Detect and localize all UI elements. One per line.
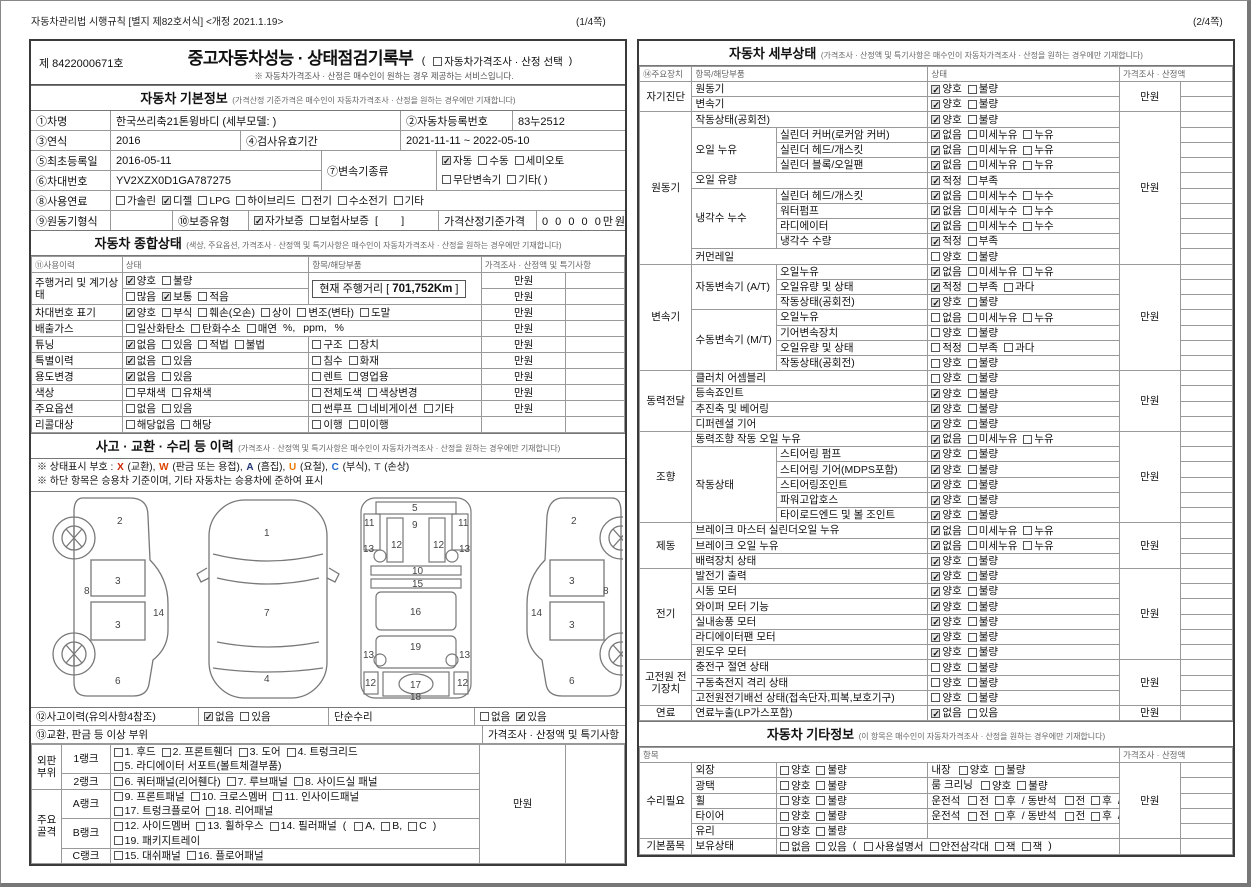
checkbox-option[interactable]: ✓양호 <box>931 508 961 522</box>
unchecked-checkbox[interactable] <box>968 146 977 155</box>
unchecked-checkbox[interactable] <box>931 328 940 337</box>
checkbox-option[interactable]: 양호 <box>931 250 961 264</box>
checkbox-option[interactable]: ✓양호 <box>931 387 961 401</box>
checked-checkbox[interactable]: ✓ <box>931 100 940 109</box>
checkbox-option[interactable]: 화재 <box>349 354 379 368</box>
checkbox-option[interactable]: 변조(변타) <box>297 306 354 320</box>
unchecked-checkbox[interactable] <box>114 836 123 845</box>
unchecked-checkbox[interactable] <box>114 792 123 801</box>
checkbox-option[interactable]: 있음 <box>240 709 270 724</box>
unchecked-checkbox[interactable] <box>381 822 390 831</box>
unchecked-checkbox[interactable] <box>312 388 321 397</box>
unchecked-checkbox[interactable] <box>995 842 1004 851</box>
checkbox-option[interactable]: 수소전기 <box>338 193 388 208</box>
checkbox-option[interactable]: 과다 <box>1004 280 1034 294</box>
checkbox-option[interactable]: ✓보통 <box>162 290 192 304</box>
unchecked-checkbox[interactable] <box>187 851 196 860</box>
checkbox-option[interactable]: ✓자가보증 <box>254 213 304 228</box>
unchecked-checkbox[interactable] <box>968 572 977 581</box>
unchecked-checkbox[interactable] <box>191 792 200 801</box>
unchecked-checkbox[interactable] <box>931 374 940 383</box>
checkbox-option[interactable]: ✓적정 <box>931 234 961 248</box>
unchecked-checkbox[interactable] <box>507 175 516 184</box>
checked-checkbox[interactable]: ✓ <box>931 709 940 718</box>
checked-checkbox[interactable]: ✓ <box>931 480 940 489</box>
checkbox-option[interactable]: ✓양호 <box>931 493 961 507</box>
checkbox-option[interactable]: 불량 <box>968 326 998 340</box>
unchecked-checkbox[interactable] <box>1023 146 1032 155</box>
unchecked-checkbox[interactable] <box>1023 191 1032 200</box>
unchecked-checkbox[interactable] <box>114 822 123 831</box>
checkbox-option[interactable]: 적법 <box>198 338 228 352</box>
unchecked-checkbox[interactable] <box>294 777 303 786</box>
unchecked-checkbox[interactable] <box>349 340 358 349</box>
unchecked-checkbox[interactable] <box>114 851 123 860</box>
checkbox-option[interactable]: ✓없음 <box>931 158 961 172</box>
checked-checkbox[interactable]: ✓ <box>931 435 940 444</box>
checkbox-option[interactable]: 19. 패키지트레이 <box>114 834 200 848</box>
checked-checkbox[interactable]: ✓ <box>931 633 940 642</box>
unchecked-checkbox[interactable] <box>312 404 321 413</box>
checked-checkbox[interactable]: ✓ <box>931 85 940 94</box>
checkbox-option[interactable]: 매연 <box>247 322 277 336</box>
unchecked-checkbox[interactable] <box>349 372 358 381</box>
unchecked-checkbox[interactable] <box>968 85 977 94</box>
unchecked-checkbox[interactable] <box>1023 222 1032 231</box>
checkbox-option[interactable]: ✓양호 <box>931 447 961 461</box>
unchecked-checkbox[interactable] <box>358 404 367 413</box>
checkbox-option[interactable]: 부족 <box>968 341 998 355</box>
checkbox-option[interactable]: 장치 <box>349 338 379 352</box>
checkbox-option[interactable]: 무채색 <box>126 386 166 400</box>
unchecked-checkbox[interactable] <box>968 191 977 200</box>
checkbox-option[interactable]: ✓없음 <box>931 128 961 142</box>
checkbox-option[interactable]: 있음 <box>162 370 192 384</box>
checkbox-option[interactable]: 양호 <box>931 371 961 385</box>
unchecked-checkbox[interactable] <box>478 156 487 165</box>
checkbox-option[interactable]: ✓없음 <box>126 370 156 384</box>
checkbox-option[interactable]: 불량 <box>968 676 998 690</box>
unchecked-checkbox[interactable] <box>968 541 977 550</box>
unchecked-checkbox[interactable] <box>480 712 489 721</box>
unchecked-checkbox[interactable] <box>968 389 977 398</box>
checkbox-option[interactable]: 없음 <box>780 840 810 854</box>
checked-checkbox[interactable]: ✓ <box>931 648 940 657</box>
checkbox-option[interactable]: 양호 <box>931 661 961 675</box>
checkbox-option[interactable]: 불량 <box>968 402 998 416</box>
unchecked-checkbox[interactable] <box>968 511 977 520</box>
checkbox-option[interactable]: 불량 <box>968 295 998 309</box>
checked-checkbox[interactable]: ✓ <box>931 161 940 170</box>
unchecked-checkbox[interactable] <box>239 748 248 757</box>
checkbox-option[interactable]: ✓양호 <box>931 615 961 629</box>
checkbox-option[interactable]: 13. 휠하우스 <box>196 819 263 833</box>
checkbox-option[interactable]: 15. 대쉬패널 <box>114 849 181 863</box>
checkbox-option[interactable]: 하이브리드 <box>236 193 295 208</box>
unchecked-checkbox[interactable] <box>968 633 977 642</box>
checkbox-option[interactable]: 미세누유 <box>968 143 1018 157</box>
checked-checkbox[interactable]: ✓ <box>931 130 940 139</box>
unchecked-checkbox[interactable] <box>408 822 417 831</box>
unchecked-checkbox[interactable] <box>968 267 977 276</box>
checked-checkbox[interactable]: ✓ <box>931 146 940 155</box>
checkbox-option[interactable]: 잭 <box>1022 840 1043 854</box>
checkbox-option[interactable]: 있음 <box>162 338 192 352</box>
unchecked-checkbox[interactable] <box>780 766 789 775</box>
checkbox-option[interactable]: 썬루프 <box>312 402 352 416</box>
checkbox-option[interactable]: LPG <box>198 195 230 207</box>
checkbox-option[interactable]: 세미오토 <box>515 153 565 168</box>
unchecked-checkbox[interactable] <box>1004 343 1013 352</box>
unchecked-checkbox[interactable] <box>310 216 319 225</box>
checkbox-option[interactable]: 미세누수 <box>968 189 1018 203</box>
checked-checkbox[interactable]: ✓ <box>931 237 940 246</box>
unchecked-checkbox[interactable] <box>968 693 977 702</box>
unchecked-checkbox[interactable] <box>198 196 207 205</box>
checkbox-option[interactable]: 구조 <box>312 338 342 352</box>
checkbox-option[interactable]: 누수 <box>1023 189 1053 203</box>
checkbox-option[interactable]: 불량 <box>968 113 998 127</box>
unchecked-checkbox[interactable] <box>349 420 358 429</box>
checkbox-option[interactable]: 있음 <box>162 402 192 416</box>
checkbox-option[interactable]: 전 <box>1065 794 1086 808</box>
checkbox-option[interactable]: 양호 <box>780 763 810 777</box>
unchecked-checkbox[interactable] <box>338 196 347 205</box>
checkbox-option[interactable]: 자동차가격조사 · 산정 선택 <box>433 54 563 69</box>
unchecked-checkbox[interactable] <box>780 796 789 805</box>
checkbox-option[interactable]: 수동 <box>478 153 508 168</box>
unchecked-checkbox[interactable] <box>162 340 171 349</box>
checked-checkbox[interactable]: ✓ <box>931 602 940 611</box>
checkbox-option[interactable]: 부족 <box>968 174 998 188</box>
unchecked-checkbox[interactable] <box>780 827 789 836</box>
checkbox-option[interactable]: 불량 <box>968 97 998 111</box>
unchecked-checkbox[interactable] <box>368 388 377 397</box>
unchecked-checkbox[interactable] <box>126 404 135 413</box>
unchecked-checkbox[interactable] <box>181 420 190 429</box>
checkbox-option[interactable]: 10. 크로스멤버 <box>191 790 268 804</box>
unchecked-checkbox[interactable] <box>930 842 939 851</box>
checkbox-option[interactable]: 5. 라디에이터 서포트(볼트체결부품) <box>114 759 282 773</box>
unchecked-checkbox[interactable] <box>968 557 977 566</box>
unchecked-checkbox[interactable] <box>442 175 451 184</box>
checkbox-option[interactable]: 후 <box>995 794 1016 808</box>
checkbox-option[interactable]: 미세누유 <box>968 539 1018 553</box>
unchecked-checkbox[interactable] <box>433 57 442 66</box>
checkbox-option[interactable]: 훼손(오손) <box>198 306 255 320</box>
unchecked-checkbox[interactable] <box>312 356 321 365</box>
checkbox-option[interactable]: 미세누유 <box>968 265 1018 279</box>
checked-checkbox[interactable]: ✓ <box>254 216 263 225</box>
checkbox-option[interactable]: 기타 <box>394 193 424 208</box>
checkbox-option[interactable]: 누유 <box>1023 158 1053 172</box>
unchecked-checkbox[interactable] <box>162 748 171 757</box>
checked-checkbox[interactable]: ✓ <box>126 276 135 285</box>
checkbox-option[interactable]: ✓없음 <box>204 709 234 724</box>
checkbox-option[interactable]: 렌트 <box>312 370 342 384</box>
checkbox-option[interactable]: 미세누유 <box>968 432 1018 446</box>
checked-checkbox[interactable]: ✓ <box>931 541 940 550</box>
checkbox-option[interactable]: 없음 <box>480 709 510 724</box>
checkbox-option[interactable]: B, <box>381 819 402 833</box>
unchecked-checkbox[interactable] <box>968 709 977 718</box>
checked-checkbox[interactable]: ✓ <box>931 267 940 276</box>
unchecked-checkbox[interactable] <box>191 324 200 333</box>
unchecked-checkbox[interactable] <box>931 343 940 352</box>
unchecked-checkbox[interactable] <box>1023 526 1032 535</box>
unchecked-checkbox[interactable] <box>114 777 123 786</box>
checkbox-option[interactable]: ✓없음 <box>126 338 156 352</box>
checked-checkbox[interactable]: ✓ <box>442 156 451 165</box>
checkbox-option[interactable]: 불량 <box>968 600 998 614</box>
checkbox-option[interactable]: ✓양호 <box>931 569 961 583</box>
checkbox-option[interactable]: 양호 <box>959 763 989 777</box>
unchecked-checkbox[interactable] <box>302 196 311 205</box>
unchecked-checkbox[interactable] <box>198 340 207 349</box>
unchecked-checkbox[interactable] <box>114 807 123 816</box>
checked-checkbox[interactable]: ✓ <box>931 526 940 535</box>
checkbox-option[interactable]: 양호 <box>780 794 810 808</box>
unchecked-checkbox[interactable] <box>931 313 940 322</box>
checkbox-option[interactable]: ✓양호 <box>931 630 961 644</box>
unchecked-checkbox[interactable] <box>1065 796 1074 805</box>
checked-checkbox[interactable]: ✓ <box>162 292 171 301</box>
checkbox-option[interactable]: ✓자동 <box>442 153 472 168</box>
checkbox-option[interactable]: 영업용 <box>349 370 389 384</box>
unchecked-checkbox[interactable] <box>816 766 825 775</box>
checkbox-option[interactable]: 누유 <box>1023 539 1053 553</box>
checked-checkbox[interactable]: ✓ <box>931 389 940 398</box>
unchecked-checkbox[interactable] <box>816 781 825 790</box>
unchecked-checkbox[interactable] <box>968 812 977 821</box>
checkbox-option[interactable]: ✓양호 <box>931 97 961 111</box>
unchecked-checkbox[interactable] <box>1023 161 1032 170</box>
checkbox-option[interactable]: 해당없음 <box>126 418 176 432</box>
unchecked-checkbox[interactable] <box>968 252 977 261</box>
checked-checkbox[interactable]: ✓ <box>931 222 940 231</box>
checkbox-option[interactable]: 미세누유 <box>968 128 1018 142</box>
checkbox-option[interactable]: 7. 루브패널 <box>227 775 288 789</box>
checkbox-option[interactable]: ✓없음 <box>931 204 961 218</box>
checkbox-option[interactable]: 불량 <box>968 82 998 96</box>
checkbox-option[interactable]: ✓양호 <box>126 306 156 320</box>
unchecked-checkbox[interactable] <box>162 372 171 381</box>
unchecked-checkbox[interactable] <box>816 827 825 836</box>
checkbox-option[interactable]: 미세누유 <box>968 311 1018 325</box>
unchecked-checkbox[interactable] <box>126 388 135 397</box>
unchecked-checkbox[interactable] <box>1023 541 1032 550</box>
unchecked-checkbox[interactable] <box>968 130 977 139</box>
checkbox-option[interactable]: 부족 <box>968 280 998 294</box>
unchecked-checkbox[interactable] <box>931 359 940 368</box>
unchecked-checkbox[interactable] <box>931 693 940 702</box>
checkbox-option[interactable]: 양호 <box>931 326 961 340</box>
unchecked-checkbox[interactable] <box>196 822 205 831</box>
unchecked-checkbox[interactable] <box>968 313 977 322</box>
checkbox-option[interactable]: ✓디젤 <box>162 193 192 208</box>
checkbox-option[interactable]: ✓양호 <box>931 645 961 659</box>
unchecked-checkbox[interactable] <box>931 678 940 687</box>
checked-checkbox[interactable]: ✓ <box>126 308 135 317</box>
checkbox-option[interactable]: 불량 <box>816 763 846 777</box>
unchecked-checkbox[interactable] <box>235 340 244 349</box>
checkbox-option[interactable]: 누유 <box>1023 311 1053 325</box>
checkbox-option[interactable]: 불량 <box>816 809 846 823</box>
checkbox-option[interactable]: ✓양호 <box>931 402 961 416</box>
unchecked-checkbox[interactable] <box>270 822 279 831</box>
checkbox-option[interactable]: ✓없음 <box>931 219 961 233</box>
checked-checkbox[interactable]: ✓ <box>931 617 940 626</box>
checkbox-option[interactable]: 불량 <box>968 661 998 675</box>
checkbox-option[interactable]: 양호 <box>780 809 810 823</box>
checkbox-option[interactable]: 부족 <box>968 234 998 248</box>
checked-checkbox[interactable]: ✓ <box>931 176 940 185</box>
unchecked-checkbox[interactable] <box>780 812 789 821</box>
unchecked-checkbox[interactable] <box>354 822 363 831</box>
checked-checkbox[interactable]: ✓ <box>931 298 940 307</box>
checkbox-option[interactable]: 17. 트렁크플로어 <box>114 804 200 818</box>
checkbox-option[interactable]: 상이 <box>261 306 291 320</box>
checked-checkbox[interactable]: ✓ <box>126 340 135 349</box>
checkbox-option[interactable]: 전기 <box>302 193 332 208</box>
unchecked-checkbox[interactable] <box>968 465 977 474</box>
checkbox-option[interactable]: 누유 <box>1023 265 1053 279</box>
checkbox-option[interactable]: 6. 쿼터패널(리어휀다) <box>114 775 221 789</box>
checkbox-option[interactable]: 양호 <box>931 676 961 690</box>
checkbox-option[interactable]: ✓적정 <box>931 174 961 188</box>
unchecked-checkbox[interactable] <box>968 298 977 307</box>
unchecked-checkbox[interactable] <box>126 420 135 429</box>
checked-checkbox[interactable]: ✓ <box>126 372 135 381</box>
unchecked-checkbox[interactable] <box>968 222 977 231</box>
checked-checkbox[interactable]: ✓ <box>931 191 940 200</box>
unchecked-checkbox[interactable] <box>968 796 977 805</box>
unchecked-checkbox[interactable] <box>968 115 977 124</box>
unchecked-checkbox[interactable] <box>816 796 825 805</box>
checkbox-option[interactable]: 이행 <box>312 418 342 432</box>
checkbox-option[interactable]: 안전삼각대 <box>930 840 989 854</box>
unchecked-checkbox[interactable] <box>968 617 977 626</box>
checkbox-option[interactable]: 불량 <box>968 478 998 492</box>
checkbox-option[interactable]: 누수 <box>1023 219 1053 233</box>
checkbox-option[interactable]: 양호 <box>780 779 810 793</box>
checkbox-option[interactable]: 불법 <box>235 338 265 352</box>
unchecked-checkbox[interactable] <box>162 308 171 317</box>
checked-checkbox[interactable]: ✓ <box>931 496 940 505</box>
unchecked-checkbox[interactable] <box>968 663 977 672</box>
checkbox-option[interactable]: 양호 <box>981 779 1011 793</box>
checkbox-option[interactable]: 적음 <box>198 290 228 304</box>
checkbox-option[interactable]: ✓있음 <box>516 709 546 724</box>
unchecked-checkbox[interactable] <box>162 356 171 365</box>
checkbox-option[interactable]: ✓양호 <box>931 417 961 431</box>
checkbox-option[interactable]: ✓없음 <box>126 354 156 368</box>
unchecked-checkbox[interactable] <box>236 196 245 205</box>
checkbox-option[interactable]: 미세누수 <box>968 219 1018 233</box>
unchecked-checkbox[interactable] <box>968 496 977 505</box>
checkbox-option[interactable]: 양호 <box>931 356 961 370</box>
checkbox-option[interactable]: ✓없음 <box>931 706 961 720</box>
unchecked-checkbox[interactable] <box>126 292 135 301</box>
checkbox-option[interactable]: 가솔린 <box>116 193 156 208</box>
checkbox-option[interactable]: 탄화수소 <box>191 322 241 336</box>
unchecked-checkbox[interactable] <box>1091 796 1100 805</box>
unchecked-checkbox[interactable] <box>240 712 249 721</box>
checkbox-option[interactable]: 16. 플로어패널 <box>187 849 264 863</box>
unchecked-checkbox[interactable] <box>312 420 321 429</box>
unchecked-checkbox[interactable] <box>227 777 236 786</box>
checkbox-option[interactable]: 불량 <box>968 645 998 659</box>
unchecked-checkbox[interactable] <box>162 276 171 285</box>
unchecked-checkbox[interactable] <box>968 343 977 352</box>
unchecked-checkbox[interactable] <box>968 587 977 596</box>
checkbox-option[interactable]: 미이행 <box>349 418 389 432</box>
checkbox-option[interactable]: 일산화탄소 <box>126 322 185 336</box>
unchecked-checkbox[interactable] <box>1023 130 1032 139</box>
checked-checkbox[interactable]: ✓ <box>931 115 940 124</box>
checkbox-option[interactable]: 3. 도어 <box>239 745 281 759</box>
checkbox-option[interactable]: 누수 <box>1023 204 1053 218</box>
unchecked-checkbox[interactable] <box>1022 842 1031 851</box>
checkbox-option[interactable]: ✓양호 <box>931 295 961 309</box>
unchecked-checkbox[interactable] <box>1023 313 1032 322</box>
checkbox-option[interactable]: ✓없음 <box>931 143 961 157</box>
checkbox-option[interactable]: 부식 <box>162 306 192 320</box>
checkbox-option[interactable]: 잭 <box>995 840 1016 854</box>
checkbox-option[interactable]: ✓양호 <box>931 600 961 614</box>
unchecked-checkbox[interactable] <box>995 812 1004 821</box>
checkbox-option[interactable]: 없음 <box>931 311 961 325</box>
checked-checkbox[interactable]: ✓ <box>931 450 940 459</box>
unchecked-checkbox[interactable] <box>968 404 977 413</box>
checkbox-option[interactable]: ✓양호 <box>931 463 961 477</box>
checkbox-option[interactable]: 누유 <box>1023 143 1053 157</box>
checkbox-option[interactable]: 양호 <box>780 824 810 838</box>
unchecked-checkbox[interactable] <box>959 766 968 775</box>
checkbox-option[interactable]: ✓양호 <box>126 274 156 288</box>
unchecked-checkbox[interactable] <box>349 356 358 365</box>
checkbox-option[interactable]: 전 <box>968 794 989 808</box>
checkbox-option[interactable]: ✓없음 <box>931 432 961 446</box>
unchecked-checkbox[interactable] <box>780 781 789 790</box>
checkbox-option[interactable]: 무단변속기 <box>442 172 501 187</box>
unchecked-checkbox[interactable] <box>424 404 433 413</box>
checkbox-option[interactable]: 과다 <box>1004 341 1034 355</box>
checkbox-option[interactable]: A, <box>354 819 375 833</box>
checkbox-option[interactable]: 불량 <box>968 463 998 477</box>
checkbox-option[interactable]: 사용설명서 <box>864 840 923 854</box>
unchecked-checkbox[interactable] <box>312 340 321 349</box>
checkbox-option[interactable]: 8. 사이드실 패널 <box>294 775 378 789</box>
checkbox-option[interactable]: 불량 <box>995 763 1025 777</box>
unchecked-checkbox[interactable] <box>816 842 825 851</box>
unchecked-checkbox[interactable] <box>312 372 321 381</box>
unchecked-checkbox[interactable] <box>968 420 977 429</box>
checkbox-option[interactable]: 불량 <box>968 493 998 507</box>
unchecked-checkbox[interactable] <box>273 792 282 801</box>
checkbox-option[interactable]: 미세누수 <box>968 204 1018 218</box>
checkbox-option[interactable]: 불량 <box>968 356 998 370</box>
unchecked-checkbox[interactable] <box>931 252 940 261</box>
unchecked-checkbox[interactable] <box>114 762 123 771</box>
checkbox-option[interactable]: 누유 <box>1023 524 1053 538</box>
checked-checkbox[interactable]: ✓ <box>931 557 940 566</box>
checked-checkbox[interactable]: ✓ <box>931 572 940 581</box>
checkbox-option[interactable]: 불량 <box>816 779 846 793</box>
unchecked-checkbox[interactable] <box>995 766 1004 775</box>
checkbox-option[interactable]: 기타 <box>424 402 454 416</box>
unchecked-checkbox[interactable] <box>968 328 977 337</box>
